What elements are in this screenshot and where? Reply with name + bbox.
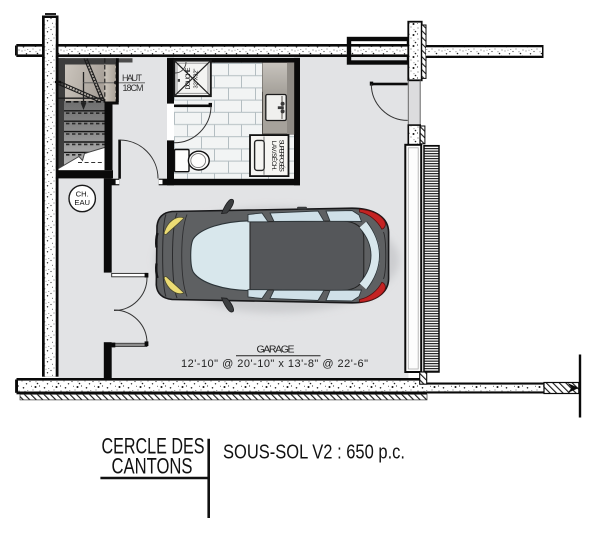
svg-text:18CM: 18CM [123,83,144,93]
svg-text:SUPERPOSÉS: SUPERPOSÉS [278,140,287,172]
svg-text:32"X32": 32"X32" [194,69,200,89]
svg-text:CANTONS: CANTONS [112,454,193,479]
svg-text:SOUS-SOL V2 : 650 p.c.: SOUS-SOL V2 : 650 p.c. [223,440,405,463]
svg-text:LAV./SÉCH.: LAV./SÉCH. [270,141,279,171]
svg-text:GARAGE: GARAGE [257,343,295,355]
svg-text:DOUCHE: DOUCHE [185,68,192,90]
svg-text:HAUT: HAUT [122,73,143,83]
svg-text:12'-10" @ 20'-10" x 13'-8" @ 2: 12'-10" @ 20'-10" x 13'-8" @ 22'-6" [181,358,368,370]
svg-text:EAU: EAU [74,198,90,207]
